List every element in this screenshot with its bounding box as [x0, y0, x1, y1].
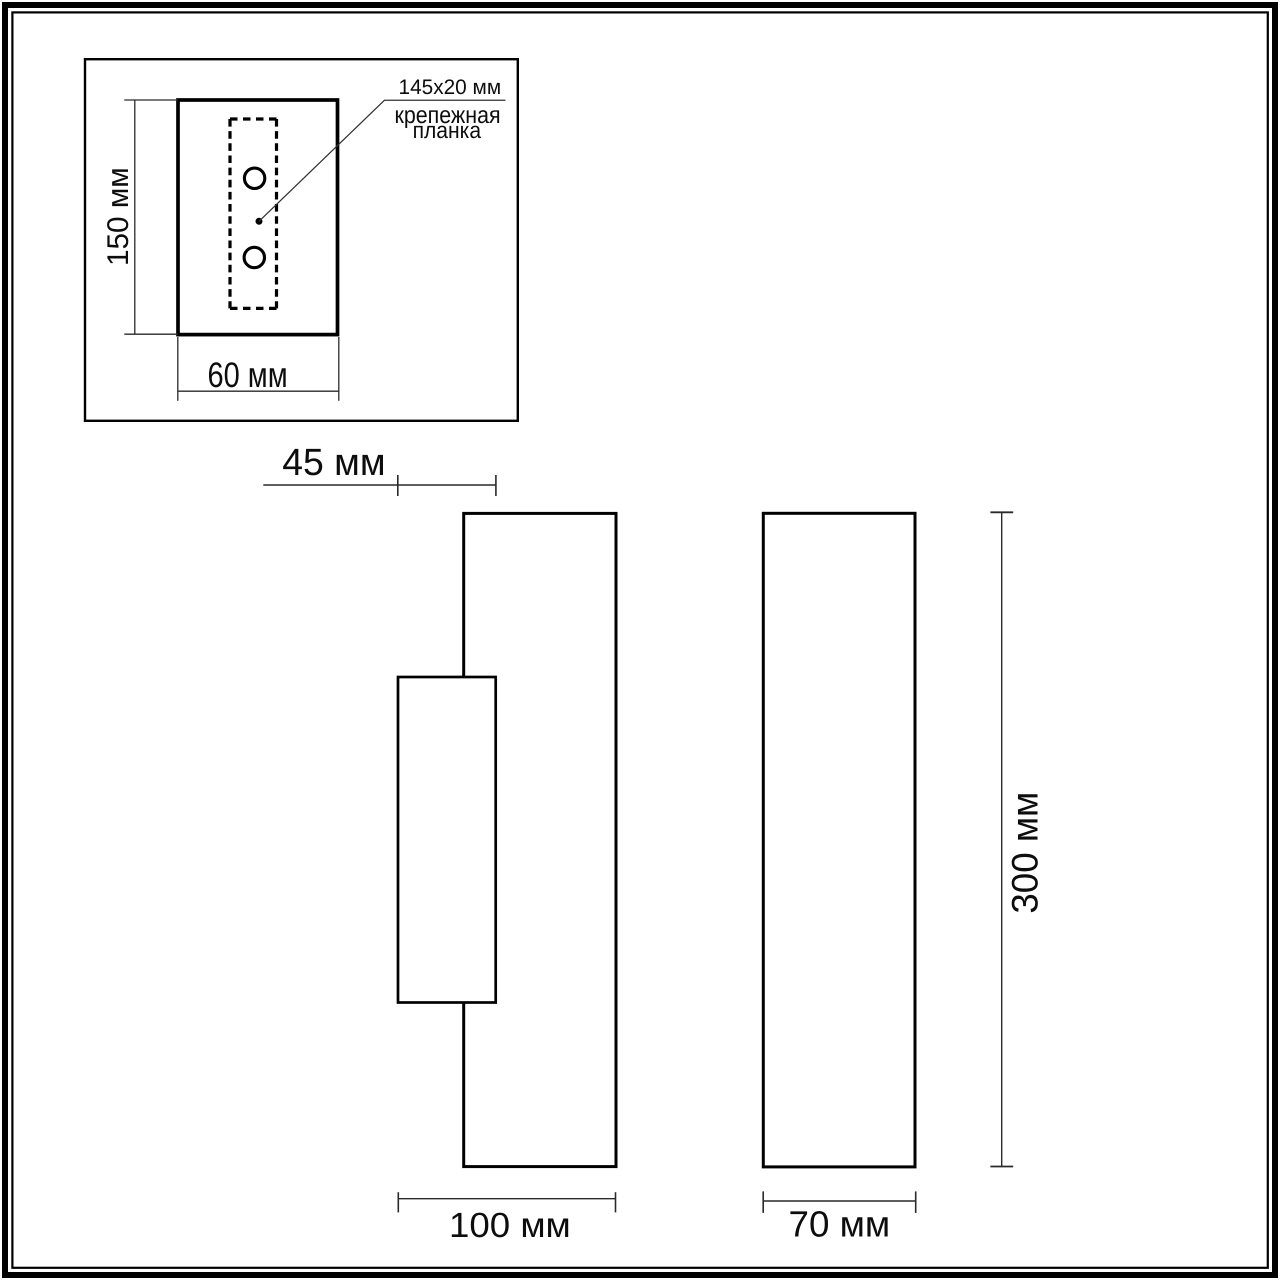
svg-text:45 мм: 45 мм	[282, 442, 385, 484]
svg-text:150 мм: 150 мм	[102, 167, 135, 266]
svg-text:145x20 мм: 145x20 мм	[399, 76, 502, 99]
svg-text:60 мм: 60 мм	[208, 355, 288, 395]
svg-text:планка: планка	[413, 117, 482, 143]
svg-text:70 мм: 70 мм	[788, 1204, 890, 1245]
svg-text:300 мм: 300 мм	[1004, 792, 1045, 914]
svg-text:100 мм: 100 мм	[449, 1206, 571, 1245]
